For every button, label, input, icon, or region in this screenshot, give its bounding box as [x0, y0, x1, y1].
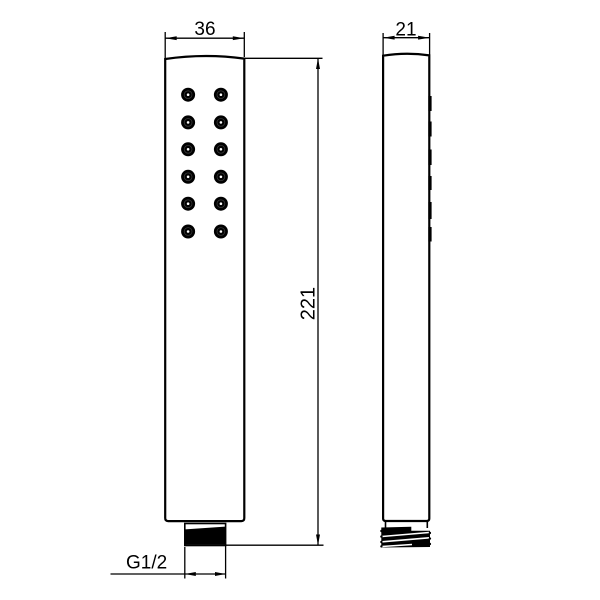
svg-text:21: 21	[395, 20, 416, 41]
svg-text:36: 36	[194, 19, 215, 40]
svg-text:G1/2: G1/2	[126, 553, 167, 574]
svg-text:221: 221	[298, 287, 320, 320]
